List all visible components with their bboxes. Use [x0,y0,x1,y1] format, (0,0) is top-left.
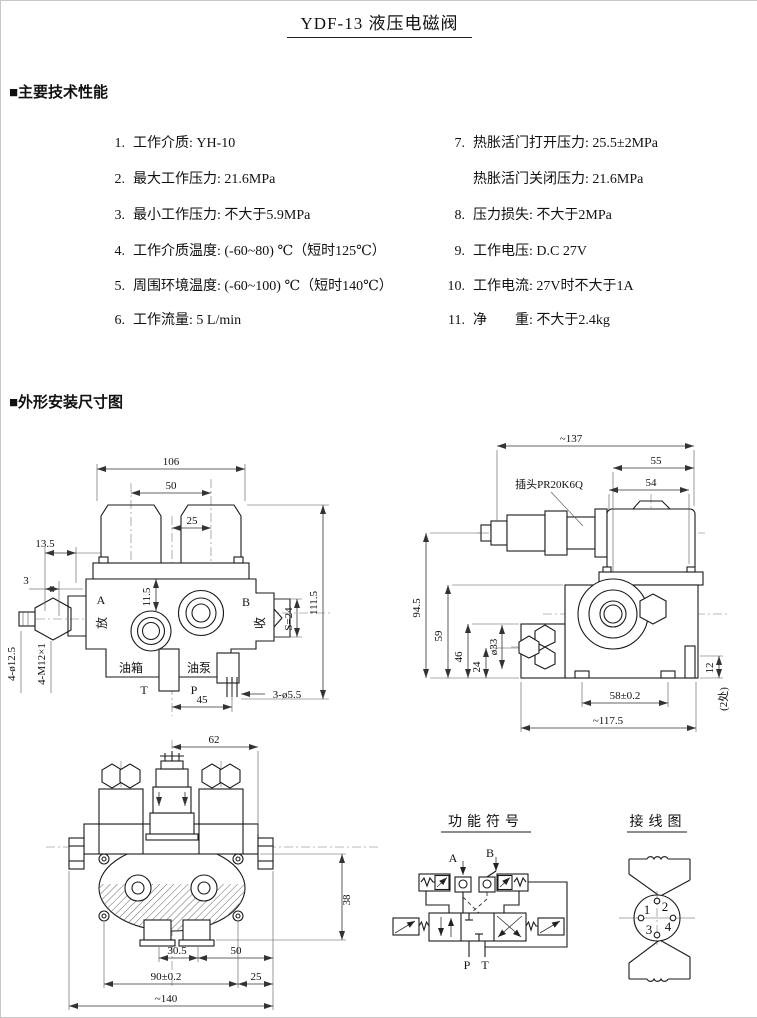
dim-50: 50 [166,480,178,492]
spec-item: 5.周围环境温度: (-60~100) ℃（短时140℃） [97,278,393,296]
schematic-port-p: P [464,958,471,972]
spec-text: 工作电压: D.C 27V [473,243,587,261]
dim-11-5: 11.5 [141,587,153,606]
spec-number: 7. [437,135,465,153]
note-2places: (2处) [717,687,730,711]
dim-137: ~137 [560,433,583,445]
spec-text: 热胀活门打开压力: 25.5±2MPa [473,135,658,153]
dim-62: 62 [209,734,220,746]
dim-140: ~140 [155,993,178,1005]
spec-number: 8. [437,207,465,225]
pump-label: 油泵 [187,661,211,675]
spec-number [437,171,465,189]
dim-54: 54 [646,477,658,489]
spec-text: 最大工作压力: 21.6MPa [133,171,275,189]
side-view-drawing: ~137 55 54 插头PR20K6Q 94.5 59 46 24 ø33 [393,426,757,736]
spec-number: 3. [97,207,125,225]
dim-12: 12 [704,663,716,674]
port-p-label: P [191,683,198,697]
spec-item: 11.净 重: 不大于2.4kg [437,312,610,330]
top-view-outline [69,751,273,946]
pin-3-label: 3 [646,922,653,937]
dim-3: 3 [23,575,29,587]
spec-text: 周围环境温度: (-60~100) ℃（短时140℃） [133,278,393,296]
dim-45: 45 [197,694,209,706]
spec-item: 7.热胀活门打开压力: 25.5±2MPa [437,135,658,153]
fang-label: 放 [94,617,109,629]
spec-item: 3.最小工作压力: 不大于5.9MPa [97,207,310,225]
spec-number: 10. [437,278,465,296]
pin-1-label: 1 [644,902,651,917]
pin-4-label: 4 [665,919,672,934]
dim-bolts: 4-ø12.5 [6,647,18,681]
spec-number: 1. [97,135,125,153]
spec-number: 11. [437,312,465,330]
dim-13-5: 13.5 [35,538,55,550]
wiring-title: 接线图 [630,813,687,830]
spec-item: 10.工作电流: 27V时不大于1A [437,278,634,296]
dim-59: 59 [433,630,445,642]
schematic-port-b: B [486,846,494,860]
spec-text: 工作介质: YH-10 [133,135,235,153]
dim-94-5: 94.5 [411,598,423,618]
spec-item: 6.工作流量: 5 L/min [97,312,241,330]
section-header-specs: ■主要技术性能 [9,81,108,102]
spec-item: 2.最大工作压力: 21.6MPa [97,171,275,189]
dim-24: 24 [471,661,483,673]
port-t-label: T [140,683,148,697]
spec-number: 6. [97,312,125,330]
dim-25: 25 [187,515,199,527]
schematic-port-t: T [481,958,489,972]
function-symbol-figure: 功能符号 A B [391,801,596,1006]
wiring-diagram-figure: 接线图 1 2 3 4 [601,801,757,1017]
spec-text: 热胀活门关闭压力: 21.6MPa [473,171,643,189]
title-block: YDF-13 液压电磁阀 [1,9,757,38]
port-b-label: B [242,595,250,609]
dim-55: 55 [651,455,663,467]
page-title: YDF-13 液压电磁阀 [287,9,473,38]
dim-30-5: 30.5 [167,945,187,957]
spec-number: 4. [97,243,125,261]
dim-58: 58±0.2 [610,690,641,702]
dim-25: 25 [251,971,263,983]
spec-number: 5. [97,278,125,296]
spec-item: 4.工作介质温度: (-60~80) ℃（短时125℃） [97,243,386,261]
dim-111-5: 111.5 [308,591,320,615]
spec-text: 最小工作压力: 不大于5.9MPa [133,207,310,225]
pin-2-label: 2 [662,899,669,914]
dim-106: 106 [163,456,180,468]
wiring-drawing: 1 2 3 4 [619,857,695,982]
plug-label: 插头PR20K6Q [515,477,583,491]
dim-46: 46 [453,651,465,663]
datasheet-page: YDF-13 液压电磁阀 ■主要技术性能 ■外形安装尺寸图 1.工作介质: YH… [0,0,757,1018]
spec-item: 热胀活门关闭压力: 21.6MPa [437,171,643,189]
dim-holes: 3-ø5.5 [273,689,302,701]
front-view-drawing: 106 50 25 13.5 3 11.5 111.5 S=24 45 3-ø5… [1,431,366,731]
spec-text: 压力损失: 不大于2MPa [473,207,612,225]
spec-item: 9.工作电压: D.C 27V [437,243,587,261]
schematic-drawing: A B [393,846,567,972]
dim-s24: S=24 [283,607,295,631]
spec-text: 工作介质温度: (-60~80) ℃（短时125℃） [133,243,386,261]
spec-text: 工作流量: 5 L/min [133,312,241,330]
dim-38: 38 [341,894,353,906]
section-header-dims: ■外形安装尺寸图 [9,391,123,412]
top-view-drawing: 62 38 30.5 50 90±0.2 25 ~140 [46,736,381,1017]
tank-label: 油箱 [119,660,143,675]
schematic-port-a: A [449,851,458,865]
side-view-outline [481,501,703,678]
spec-number: 9. [437,243,465,261]
dim-33: ø33 [488,638,500,655]
spec-text: 净 重: 不大于2.4kg [473,312,610,330]
port-a-label: A [97,593,106,607]
dim-117-5: ~117.5 [593,715,624,727]
spec-item: 8.压力损失: 不大于2MPa [437,207,612,225]
spec-number: 2. [97,171,125,189]
dim-50: 50 [231,945,243,957]
dim-threads: 4-M12×1 [36,643,48,685]
function-symbol-title: 功能符号 [448,814,524,830]
spec-item: 1.工作介质: YH-10 [97,135,235,153]
spec-text: 工作电流: 27V时不大于1A [473,278,634,296]
shou-label: 收 [253,617,267,629]
dim-90: 90±0.2 [151,971,182,983]
